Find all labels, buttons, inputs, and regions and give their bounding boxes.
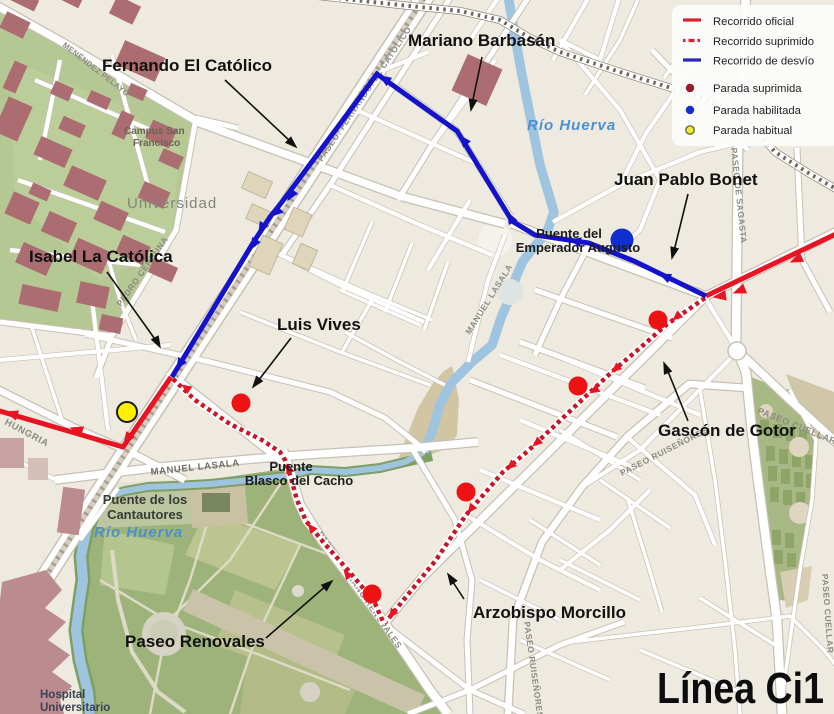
svg-text:Emperador Augusto: Emperador Augusto xyxy=(516,240,641,255)
svg-text:Universitario: Universitario xyxy=(40,702,110,714)
svg-text:Paseo Renovales: Paseo Renovales xyxy=(125,632,265,651)
svg-text:Puente del: Puente del xyxy=(536,226,602,241)
svg-text:Luis Vives: Luis Vives xyxy=(277,315,361,334)
svg-text:Hospital: Hospital xyxy=(40,689,85,701)
svg-text:Fernando El Católico: Fernando El Católico xyxy=(102,56,272,75)
svg-text:Recorrido suprimido: Recorrido suprimido xyxy=(713,36,814,48)
svg-text:Puente: Puente xyxy=(269,459,312,474)
svg-text:Arzobispo Morcillo: Arzobispo Morcillo xyxy=(473,603,626,622)
svg-text:Recorrido de desvío: Recorrido de desvío xyxy=(713,56,814,68)
svg-text:Isabel La Católica: Isabel La Católica xyxy=(29,247,173,266)
svg-text:Universidad: Universidad xyxy=(127,195,217,212)
svg-text:Puente de los: Puente de los xyxy=(103,492,188,507)
svg-text:Recorrido oficial: Recorrido oficial xyxy=(713,16,794,28)
svg-text:Parada habitual: Parada habitual xyxy=(713,125,792,137)
svg-text:Francisco: Francisco xyxy=(133,138,180,149)
svg-text:Campus San: Campus San xyxy=(124,126,185,137)
svg-text:Parada suprimida: Parada suprimida xyxy=(713,83,802,95)
svg-text:Blasco del Cacho: Blasco del Cacho xyxy=(245,473,353,488)
svg-text:Río Huerva: Río Huerva xyxy=(94,524,183,541)
svg-text:Gascón de Gotor: Gascón de Gotor xyxy=(658,421,796,440)
svg-text:Río Huerva: Río Huerva xyxy=(527,117,616,134)
svg-text:Cantautores: Cantautores xyxy=(107,507,183,522)
svg-text:Línea Ci1: Línea Ci1 xyxy=(657,664,824,713)
svg-text:Juan Pablo Bonet: Juan Pablo Bonet xyxy=(614,170,758,189)
svg-text:Parada habilitada: Parada habilitada xyxy=(713,105,802,117)
svg-text:Mariano Barbasán: Mariano Barbasán xyxy=(408,31,555,50)
